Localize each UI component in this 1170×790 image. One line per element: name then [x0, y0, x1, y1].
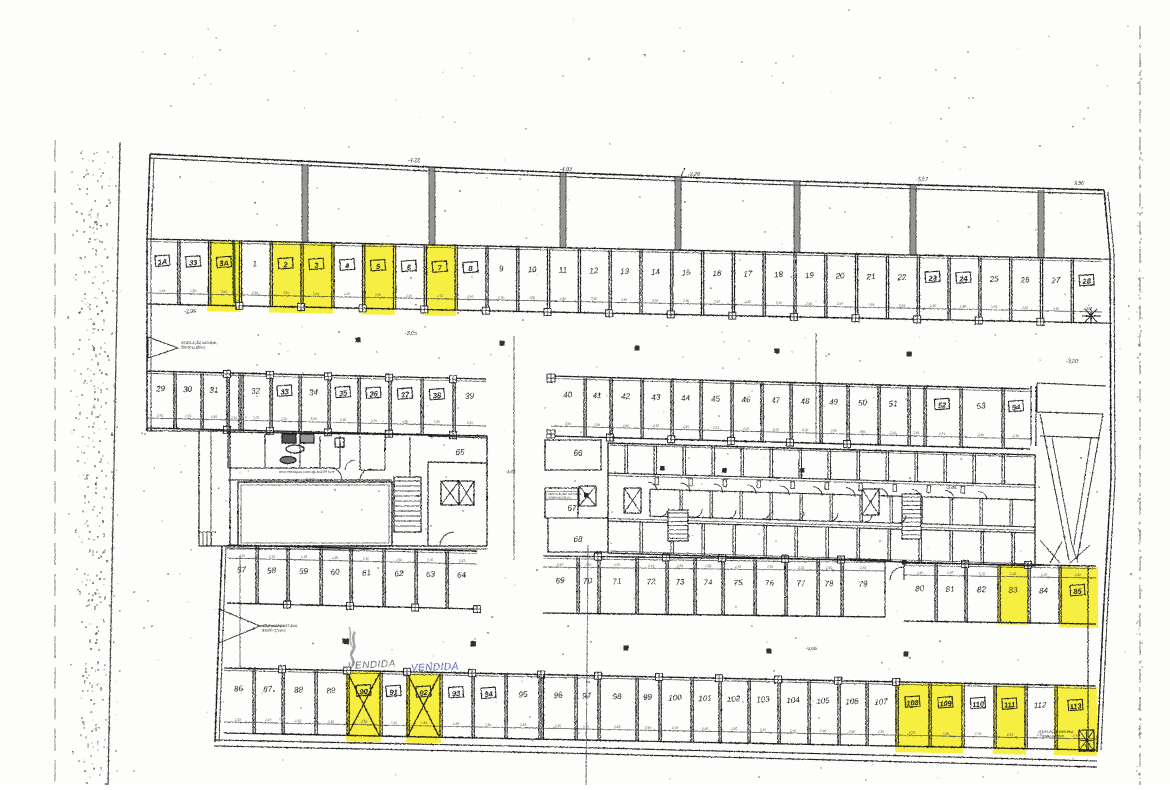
- svg-text:3A: 3A: [219, 258, 229, 268]
- svg-text:51: 51: [888, 399, 898, 409]
- svg-text:27: 27: [1050, 276, 1061, 286]
- svg-text:2,50: 2,50: [1012, 434, 1019, 438]
- svg-text:20: 20: [834, 271, 845, 281]
- svg-text:2,50: 2,50: [682, 299, 689, 303]
- svg-text:11: 11: [558, 265, 567, 275]
- svg-text:2,50: 2,50: [766, 565, 773, 569]
- svg-text:2,50: 2,50: [775, 301, 782, 305]
- svg-text:2,50: 2,50: [836, 302, 843, 306]
- svg-text:49: 49: [829, 397, 839, 407]
- svg-text:39: 39: [465, 391, 475, 401]
- svg-text:25: 25: [988, 274, 999, 284]
- svg-text:2,50: 2,50: [590, 297, 597, 301]
- svg-text:113: 113: [1069, 701, 1082, 711]
- svg-text:2,50: 2,50: [929, 304, 936, 308]
- svg-text:-4,23: -4,23: [408, 158, 420, 164]
- svg-text:2,50: 2,50: [825, 566, 832, 570]
- svg-text:78: 78: [824, 579, 834, 589]
- svg-text:2,50: 2,50: [701, 727, 708, 731]
- svg-text:100: 100: [668, 693, 682, 703]
- svg-text:-4,03: -4,03: [560, 167, 572, 173]
- svg-text:2,50: 2,50: [327, 720, 334, 724]
- svg-text:2,50: 2,50: [848, 730, 855, 734]
- svg-text:47: 47: [771, 396, 781, 406]
- svg-text:2,50: 2,50: [858, 430, 865, 434]
- svg-text:2,50: 2,50: [1052, 307, 1059, 311]
- svg-text:300x50 (1,50m2): 300x50 (1,50m2): [262, 629, 286, 633]
- svg-text:2,50: 2,50: [734, 565, 741, 569]
- svg-text:59: 59: [299, 567, 309, 577]
- svg-text:-3,00: -3,00: [1066, 359, 1078, 365]
- svg-text:16: 16: [712, 269, 722, 279]
- svg-text:2,50: 2,50: [942, 732, 949, 736]
- svg-text:84: 84: [1039, 586, 1049, 596]
- svg-text:48: 48: [800, 397, 810, 407]
- svg-text:52: 52: [938, 400, 948, 410]
- svg-text:2,50: 2,50: [620, 298, 627, 302]
- svg-text:50: 50: [858, 398, 868, 408]
- svg-text:2,50: 2,50: [370, 419, 377, 423]
- svg-text:2,50: 2,50: [339, 418, 346, 422]
- svg-text:2,50: 2,50: [977, 433, 984, 437]
- svg-text:2,50: 2,50: [564, 422, 571, 426]
- svg-text:2,50: 2,50: [331, 556, 338, 560]
- svg-text:19: 19: [805, 271, 815, 281]
- svg-text:104: 104: [786, 695, 800, 705]
- svg-text:73: 73: [675, 577, 685, 587]
- svg-text:2,50: 2,50: [797, 566, 804, 570]
- svg-text:18: 18: [774, 270, 784, 280]
- svg-text:101: 101: [698, 693, 712, 703]
- svg-text:2,50: 2,50: [294, 719, 301, 723]
- svg-text:92: 92: [419, 688, 429, 698]
- svg-text:108: 108: [906, 698, 920, 708]
- svg-text:-3,57: -3,57: [916, 177, 929, 183]
- svg-text:300x50 (1,50m2): 300x50 (1,50m2): [181, 345, 205, 349]
- svg-text:17: 17: [743, 269, 753, 279]
- svg-text:2,50: 2,50: [390, 721, 397, 725]
- svg-text:2,50: 2,50: [343, 292, 350, 296]
- svg-text:91: 91: [389, 687, 398, 697]
- svg-text:2,50: 2,50: [362, 557, 369, 561]
- svg-text:67: 67: [568, 504, 577, 513]
- svg-text:tecto rebaixado com laje h=2,8: tecto rebaixado com laje h=2,80 livre: [279, 470, 334, 474]
- svg-text:-3,05: -3,05: [405, 331, 417, 337]
- svg-text:2,50: 2,50: [671, 726, 678, 730]
- svg-text:13: 13: [620, 267, 630, 277]
- svg-text:98: 98: [612, 692, 622, 702]
- svg-text:44: 44: [681, 393, 691, 403]
- svg-text:58: 58: [267, 566, 277, 576]
- svg-text:2,50: 2,50: [436, 294, 443, 298]
- svg-text:2,50: 2,50: [959, 305, 966, 309]
- svg-text:85: 85: [1073, 587, 1083, 597]
- svg-text:2,50: 2,50: [593, 423, 600, 427]
- svg-text:2,50: 2,50: [234, 718, 241, 722]
- svg-text:2,50: 2,50: [497, 296, 504, 300]
- svg-text:94: 94: [484, 689, 493, 699]
- svg-text:23: 23: [927, 273, 938, 283]
- svg-text:-3,05: -3,05: [505, 469, 516, 474]
- svg-text:2,50: 2,50: [189, 289, 196, 293]
- svg-text:2,50: 2,50: [682, 425, 689, 429]
- svg-text:2,50: 2,50: [395, 558, 402, 562]
- svg-text:2,50: 2,50: [559, 297, 566, 301]
- svg-text:65: 65: [456, 448, 465, 457]
- svg-text:74: 74: [703, 578, 713, 588]
- svg-text:76: 76: [765, 578, 775, 588]
- svg-text:21: 21: [865, 272, 876, 282]
- svg-text:80: 80: [915, 584, 925, 594]
- svg-text:2,50: 2,50: [268, 555, 275, 559]
- svg-text:2,50: 2,50: [830, 429, 837, 433]
- svg-text:2,50: 2,50: [908, 731, 915, 735]
- svg-text:112: 112: [1033, 700, 1047, 710]
- svg-text:2,50: 2,50: [1040, 573, 1047, 577]
- svg-text:63: 63: [426, 570, 436, 580]
- svg-text:31: 31: [209, 385, 219, 395]
- svg-text:2,50: 2,50: [801, 428, 808, 432]
- svg-text:71: 71: [612, 577, 622, 587]
- svg-text:2,50: 2,50: [452, 722, 459, 726]
- svg-text:22: 22: [896, 272, 907, 282]
- svg-text:1A: 1A: [157, 257, 167, 267]
- svg-text:40: 40: [563, 390, 573, 400]
- svg-text:93: 93: [452, 689, 462, 699]
- svg-text:46: 46: [741, 395, 751, 405]
- svg-text:2,50: 2,50: [280, 417, 287, 421]
- svg-text:2,50: 2,50: [420, 721, 427, 725]
- svg-text:2,50: 2,50: [759, 728, 766, 732]
- svg-text:-3,00: -3,00: [806, 646, 817, 651]
- svg-text:2,50: 2,50: [458, 559, 465, 563]
- svg-text:75: 75: [733, 578, 743, 588]
- svg-text:2,50: 2,50: [889, 431, 896, 435]
- svg-text:2,50: 2,50: [158, 289, 165, 293]
- svg-text:2,50: 2,50: [210, 415, 217, 419]
- svg-text:110: 110: [972, 699, 985, 709]
- svg-text:300x50 (0,15m2): 300x50 (0,15m2): [548, 496, 571, 500]
- svg-text:2,50: 2,50: [312, 292, 319, 296]
- svg-text:2,50: 2,50: [556, 563, 563, 567]
- svg-text:2,50: 2,50: [978, 572, 985, 576]
- svg-text:2,50: 2,50: [912, 431, 919, 435]
- svg-text:2,50: 2,50: [484, 723, 491, 727]
- svg-text:2,50: 2,50: [466, 421, 473, 425]
- svg-text:2,50: 2,50: [528, 296, 535, 300]
- svg-text:2,50: 2,50: [704, 564, 711, 568]
- svg-text:86: 86: [234, 684, 244, 694]
- svg-text:2,50: 2,50: [1021, 306, 1028, 310]
- svg-text:4: 4: [344, 261, 350, 270]
- svg-text:2,50: 2,50: [519, 723, 526, 727]
- svg-text:87: 87: [263, 685, 273, 695]
- svg-text:79: 79: [858, 579, 868, 589]
- svg-text:109: 109: [939, 699, 953, 709]
- svg-text:30: 30: [183, 385, 193, 395]
- svg-text:2,50: 2,50: [819, 729, 826, 733]
- svg-text:60x50 (0,30m2): 60x50 (0,30m2): [1042, 735, 1064, 739]
- svg-text:2,50: 2,50: [374, 293, 381, 297]
- svg-text:41: 41: [592, 391, 602, 401]
- svg-text:34: 34: [309, 388, 319, 398]
- svg-text:61: 61: [362, 568, 372, 578]
- svg-text:VENTILAÇÃO NATURAL: VENTILAÇÃO NATURAL: [262, 623, 298, 628]
- svg-text:2,50: 2,50: [651, 299, 658, 303]
- svg-text:2,50: 2,50: [252, 416, 259, 420]
- svg-text:54: 54: [1012, 403, 1021, 413]
- svg-text:68: 68: [574, 535, 583, 544]
- svg-text:2,50: 2,50: [622, 424, 629, 428]
- svg-text:2,50: 2,50: [712, 426, 719, 430]
- svg-text:53: 53: [976, 401, 986, 411]
- svg-text:2,50: 2,50: [990, 305, 997, 309]
- svg-text:111: 111: [1004, 700, 1016, 710]
- svg-text:2,50: 2,50: [742, 427, 749, 431]
- svg-text:99: 99: [643, 692, 653, 702]
- svg-text:2,50: 2,50: [264, 718, 271, 722]
- svg-text:-3,36: -3,36: [1072, 181, 1084, 187]
- svg-text:2,50: 2,50: [859, 566, 866, 570]
- svg-text:2,50: 2,50: [184, 414, 191, 418]
- svg-text:VENTILAÇÃO NATURAL: VENTILAÇÃO NATURAL: [181, 340, 217, 345]
- svg-text:33: 33: [280, 387, 290, 397]
- svg-text:62: 62: [394, 569, 404, 579]
- svg-text:VENTILAÇÃO NATURAL: VENTILAÇÃO NATURAL: [1038, 729, 1074, 734]
- svg-text:28: 28: [1081, 277, 1092, 287]
- svg-text:2,50: 2,50: [713, 300, 720, 304]
- svg-text:2,50: 2,50: [230, 416, 237, 420]
- svg-text:83: 83: [1008, 585, 1018, 595]
- svg-text:2,50: 2,50: [1072, 734, 1079, 738]
- svg-text:2,50: 2,50: [433, 420, 440, 424]
- svg-text:2,50: 2,50: [789, 729, 796, 733]
- svg-text:2,50: 2,50: [613, 563, 620, 567]
- svg-text:2,50: 2,50: [730, 727, 737, 731]
- svg-text:37: 37: [401, 390, 411, 400]
- svg-text:2,50: 2,50: [652, 424, 659, 428]
- svg-text:103: 103: [756, 695, 770, 705]
- svg-text:2,50: 2,50: [938, 432, 945, 436]
- svg-text:33: 33: [189, 258, 199, 268]
- svg-text:2,50: 2,50: [916, 571, 923, 575]
- svg-text:2,50: 2,50: [1006, 733, 1013, 737]
- svg-text:1: 1: [252, 259, 257, 268]
- svg-text:2,50: 2,50: [360, 720, 367, 724]
- svg-text:32: 32: [251, 386, 261, 396]
- svg-text:2,50: 2,50: [867, 303, 874, 307]
- svg-text:43: 43: [651, 392, 661, 402]
- svg-text:66: 66: [574, 449, 583, 458]
- svg-text:69: 69: [555, 576, 565, 586]
- svg-text:24: 24: [958, 274, 968, 284]
- svg-text:2,50: 2,50: [772, 428, 779, 432]
- svg-text:77: 77: [796, 579, 806, 589]
- svg-text:2,50: 2,50: [220, 290, 227, 294]
- svg-text:45: 45: [711, 394, 721, 404]
- svg-text:2,50: 2,50: [426, 558, 433, 562]
- svg-text:57: 57: [237, 565, 247, 575]
- svg-text:82: 82: [977, 585, 987, 595]
- svg-text:42: 42: [621, 392, 631, 402]
- svg-text:96: 96: [553, 691, 563, 701]
- svg-text:2,50: 2,50: [156, 414, 163, 418]
- svg-text:2,50: 2,50: [744, 300, 751, 304]
- svg-text:-3,05: -3,05: [184, 309, 196, 315]
- svg-text:2,50: 2,50: [877, 730, 884, 734]
- svg-text:2,50: 2,50: [647, 564, 654, 568]
- svg-text:2,50: 2,50: [1074, 573, 1081, 577]
- svg-text:26: 26: [1019, 275, 1030, 285]
- svg-text:60: 60: [330, 567, 340, 577]
- svg-text:35: 35: [339, 388, 349, 398]
- svg-text:2,50: 2,50: [300, 555, 307, 559]
- svg-text:102: 102: [727, 694, 741, 704]
- svg-text:106: 106: [845, 697, 859, 707]
- svg-text:-3,05: -3,05: [304, 477, 315, 482]
- svg-text:10: 10: [527, 265, 537, 275]
- svg-text:2,50: 2,50: [554, 724, 561, 728]
- svg-text:12: 12: [589, 266, 599, 276]
- svg-text:38: 38: [433, 391, 443, 401]
- svg-text:64: 64: [457, 570, 467, 580]
- svg-text:2,50: 2,50: [282, 291, 289, 295]
- svg-text:15: 15: [681, 268, 691, 278]
- svg-text:2,50: 2,50: [946, 571, 953, 575]
- svg-text:29: 29: [155, 384, 166, 394]
- svg-text:95: 95: [518, 690, 528, 700]
- svg-text:VENDIDA: VENDIDA: [411, 661, 459, 674]
- svg-text:89: 89: [326, 686, 336, 696]
- svg-text:81: 81: [945, 584, 955, 594]
- svg-text:2,50: 2,50: [238, 554, 245, 558]
- svg-text:2,50: 2,50: [405, 294, 412, 298]
- svg-text:2,50: 2,50: [676, 564, 683, 568]
- svg-text:-3,05: -3,05: [946, 485, 957, 490]
- svg-text:2,50: 2,50: [401, 420, 408, 424]
- svg-text:2,50: 2,50: [974, 732, 981, 736]
- svg-text:105: 105: [816, 696, 830, 706]
- svg-text:2,50: 2,50: [582, 725, 589, 729]
- svg-text:14: 14: [651, 267, 661, 277]
- svg-text:2,50: 2,50: [466, 295, 473, 299]
- svg-text:-3,20: -3,20: [688, 172, 700, 178]
- svg-text:2,50: 2,50: [805, 302, 812, 306]
- svg-text:2,50: 2,50: [310, 417, 317, 421]
- svg-text:2,50: 2,50: [898, 304, 905, 308]
- svg-text:2,50: 2,50: [613, 725, 620, 729]
- svg-text:90: 90: [359, 687, 369, 697]
- svg-text:88: 88: [294, 685, 304, 695]
- svg-text:2,50: 2,50: [251, 291, 258, 295]
- svg-text:72: 72: [646, 577, 656, 587]
- svg-text:2,50: 2,50: [1009, 572, 1016, 576]
- svg-text:36: 36: [369, 389, 379, 399]
- svg-text:107: 107: [874, 697, 888, 707]
- svg-text:2,50: 2,50: [644, 726, 651, 730]
